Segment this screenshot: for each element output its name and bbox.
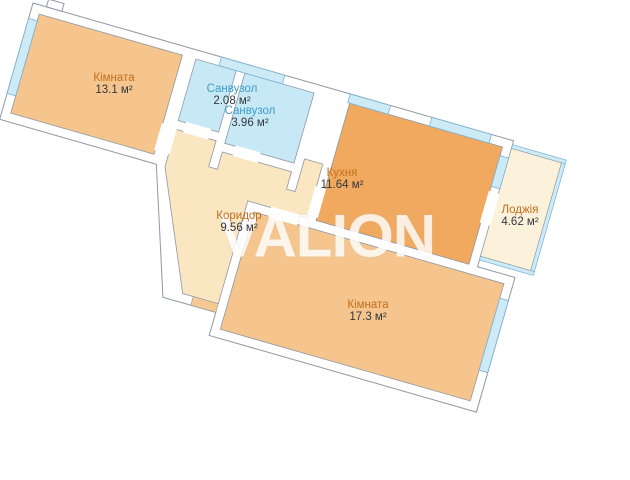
room-area: 3.96 м² <box>225 117 276 129</box>
room-name: Коридор <box>216 210 261 222</box>
room-area: 13.1 м² <box>93 84 134 96</box>
room-area: 11.64 м² <box>321 179 364 191</box>
room-name: Лоджія <box>501 204 538 216</box>
floor-plan-page: { "watermark": "VALION", "rooms": [ {"na… <box>0 0 630 475</box>
label-room-kimnata-17: Кімната 17.3 м² <box>347 299 388 323</box>
label-room-kukhnya: Кухня 11.64 м² <box>321 167 364 191</box>
label-room-kimnata-13: Кімната 13.1 м² <box>93 72 134 96</box>
label-room-sanvuzol-2: Санвузол 2.08 м² <box>207 83 258 107</box>
label-room-korydor: Коридор 9.56 м² <box>216 210 261 234</box>
room-name: Кухня <box>321 167 364 179</box>
room-name: Кімната <box>93 72 134 84</box>
room-name: Санвузол <box>225 105 276 117</box>
room-name: Кімната <box>347 299 388 311</box>
label-room-lodzhiya: Лоджія 4.62 м² <box>501 204 538 228</box>
room-name: Санвузол <box>207 83 258 95</box>
room-area: 17.3 м² <box>347 311 388 323</box>
room-area: 9.56 м² <box>216 222 261 234</box>
label-room-sanvuzol-3: Санвузол 3.96 м² <box>225 105 276 129</box>
room-area: 4.62 м² <box>501 216 538 228</box>
